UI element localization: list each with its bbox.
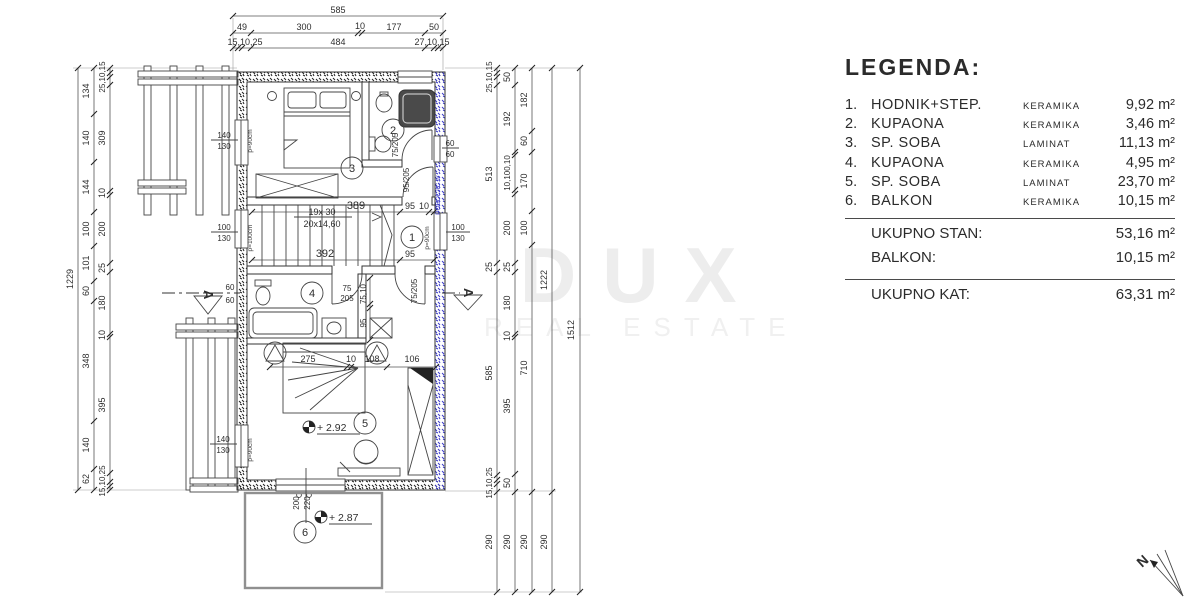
blueprint-page: DUX REAL ESTATE bbox=[0, 0, 1200, 601]
dim-label: 180 bbox=[502, 295, 512, 310]
room-material: KERAMIKA bbox=[1023, 101, 1113, 112]
legend-title: LEGENDA: bbox=[845, 54, 1175, 81]
room-name: KUPAONA bbox=[871, 155, 1023, 171]
dim-label: 200 bbox=[97, 221, 107, 236]
level-markers bbox=[303, 421, 372, 524]
window-labels: 140 130 100 130 140 130 100 130 60 60 60… bbox=[210, 131, 470, 455]
window-size-label: 130 bbox=[217, 142, 231, 151]
dim-label: 389 bbox=[347, 200, 365, 212]
room-name: KUPAONA bbox=[871, 116, 1023, 132]
legend-item: 3. SP. SOBA LAMINAT 11,13 m² bbox=[845, 135, 1175, 154]
dim-label: 62 bbox=[81, 474, 91, 484]
room-number: 1 bbox=[409, 232, 415, 244]
room-material: KERAMIKA bbox=[1023, 120, 1113, 131]
dim-label: 290 bbox=[539, 534, 549, 549]
dim-label: 60 bbox=[519, 136, 529, 146]
bathroom4-fixtures bbox=[249, 280, 392, 338]
dim-label: 95 bbox=[405, 201, 415, 211]
room-area: 11,13 m² bbox=[1113, 135, 1175, 151]
balcony-door-label: 200 bbox=[292, 496, 301, 510]
total-value: 10,15 m² bbox=[1113, 249, 1175, 266]
dim-label: 290 bbox=[519, 534, 529, 549]
dim-label: 15,10,25 bbox=[98, 465, 107, 497]
room-name: HODNIK+STEP. bbox=[871, 97, 1023, 113]
dim-label: 100 bbox=[519, 220, 529, 235]
insulated-wall-blue bbox=[435, 72, 445, 490]
dim-label: 513 bbox=[484, 166, 494, 181]
dim-label: 1222 bbox=[539, 270, 549, 290]
room-number: 2 bbox=[390, 125, 396, 137]
legend-divider bbox=[845, 218, 1175, 219]
room-number: 6 bbox=[302, 527, 308, 539]
total-label: UKUPNO STAN: bbox=[871, 225, 1113, 242]
dim-label: 309 bbox=[97, 130, 107, 145]
dim-label: 106 bbox=[404, 354, 419, 364]
room-material: LAMINAT bbox=[1023, 139, 1113, 150]
dim-label: 10,100,10 bbox=[503, 155, 512, 191]
dim-label: 10 bbox=[419, 201, 429, 211]
dim-label: 1229 bbox=[65, 269, 75, 289]
bedroom3-furniture bbox=[256, 88, 361, 198]
window-size-label: 140 bbox=[217, 131, 231, 140]
room-material: LAMINAT bbox=[1023, 178, 1113, 189]
dim-label: 585 bbox=[484, 365, 494, 380]
dim-label: 192 bbox=[502, 111, 512, 126]
window-size-label: 100 bbox=[217, 223, 231, 232]
dim-label: 200 bbox=[502, 220, 512, 235]
dim-label: 180 bbox=[97, 295, 107, 310]
legend-item: 6. BALKON KERAMIKA 10,15 m² bbox=[845, 193, 1175, 212]
dim-label: 585 bbox=[330, 5, 345, 15]
parapet-label: p=90cm bbox=[424, 226, 431, 249]
item-number: 3. bbox=[845, 135, 871, 151]
dim-label: 395 bbox=[502, 398, 512, 413]
total-value: 53,16 m² bbox=[1113, 225, 1175, 242]
legend-item: 2. KUPAONA KERAMIKA 3,46 m² bbox=[845, 116, 1175, 135]
dim-label: 710 bbox=[519, 360, 529, 375]
dim-label: 50 bbox=[502, 478, 512, 488]
room-area: 4,95 m² bbox=[1113, 155, 1175, 171]
left-dim-labels: 1229 134 140 144 100 101 60 348 140 62 2… bbox=[65, 61, 107, 497]
dim-label: 392 bbox=[316, 248, 334, 260]
dim-label: 60 bbox=[81, 286, 91, 296]
total-label: BALKON: bbox=[871, 249, 1113, 266]
legend-divider bbox=[845, 279, 1175, 280]
parapet-label: p=90cm bbox=[247, 438, 254, 461]
legend-item: 1. HODNIK+STEP. KERAMIKA 9,92 m² bbox=[845, 97, 1175, 116]
level-label: + 2.87 bbox=[329, 512, 359, 524]
section-letter: A bbox=[461, 288, 476, 298]
right-dim-labels: 25,10,15 513 25 585 15,10,25 290 50 192 … bbox=[484, 61, 576, 550]
dim-label: 290 bbox=[484, 534, 494, 549]
section-letter: A bbox=[201, 290, 216, 300]
item-number: 1. bbox=[845, 97, 871, 113]
window-size-label: 130 bbox=[217, 234, 231, 243]
dim-label: 15,10,25 bbox=[485, 467, 494, 499]
item-number: 4. bbox=[845, 155, 871, 171]
legend-grand-total-row: UKUPNO KAT: 63,31 m² bbox=[845, 286, 1175, 310]
dim-label: 10 bbox=[355, 21, 365, 31]
dim-label: 25 bbox=[502, 262, 512, 272]
room-material: KERAMIKA bbox=[1023, 197, 1113, 208]
north-letter: N bbox=[1133, 552, 1151, 571]
dim-label: 25,10,15 bbox=[485, 61, 494, 93]
dim-label: 144 bbox=[81, 179, 91, 194]
dim-label: 75,10 bbox=[359, 283, 368, 304]
window-size-label: 60 bbox=[446, 139, 455, 148]
legend-rows: 1. HODNIK+STEP. KERAMIKA 9,92 m² 2. KUPA… bbox=[845, 97, 1175, 212]
dim-label: 95 bbox=[405, 249, 415, 259]
door-size-label: 205 bbox=[340, 294, 354, 303]
room-number: 3 bbox=[349, 163, 355, 175]
legend-item: 5. SP. SOBA LAMINAT 23,70 m² bbox=[845, 174, 1175, 193]
stair-steps-label: 19x 30 bbox=[308, 207, 335, 217]
room-area: 3,46 m² bbox=[1113, 116, 1175, 132]
room-material: KERAMIKA bbox=[1023, 159, 1113, 170]
dim-label: 100 bbox=[81, 221, 91, 236]
top-dim-labels: 585 49 300 10 177 50 15,10,25 484 27,10,… bbox=[227, 5, 449, 47]
room-number: 4 bbox=[309, 288, 315, 300]
dim-label: 95 bbox=[359, 318, 368, 327]
balcony-door-label: 220 bbox=[303, 496, 312, 510]
item-number: 6. bbox=[845, 193, 871, 209]
dim-label: 290 bbox=[502, 534, 512, 549]
dim-label: 10 bbox=[97, 188, 107, 198]
dim-label: 1512 bbox=[566, 320, 576, 340]
pergola-top-left bbox=[138, 66, 238, 215]
legend-total-row: UKUPNO STAN: 53,16 m² bbox=[845, 225, 1175, 249]
legend-total-row: BALKON: 10,15 m² bbox=[845, 249, 1175, 273]
dim-label: 101 bbox=[81, 255, 91, 270]
window-size-label: 60 bbox=[226, 296, 235, 305]
dim-label: 140 bbox=[81, 130, 91, 145]
window-size-label: 100 bbox=[451, 223, 465, 232]
door-size-label: 95/205 bbox=[402, 167, 411, 192]
window-size-label: 60 bbox=[446, 150, 455, 159]
door-size-label: 75 bbox=[343, 284, 352, 293]
dim-label: 25 bbox=[97, 263, 107, 273]
bathroom2-fixtures bbox=[369, 90, 435, 152]
dim-label: 108 bbox=[364, 354, 379, 364]
dim-label: 50 bbox=[502, 72, 512, 82]
stair-rise-label: 20x14,60 bbox=[303, 219, 340, 229]
grand-total-value: 63,31 m² bbox=[1113, 286, 1175, 303]
dim-label: 348 bbox=[81, 353, 91, 368]
room-name: BALKON bbox=[871, 193, 1023, 209]
room-area: 10,15 m² bbox=[1113, 193, 1175, 209]
room-number: 5 bbox=[362, 418, 368, 430]
interior-labels: 389 95 10 392 95 19x 30 20x14,60 275 10 … bbox=[247, 129, 442, 524]
dim-label: 50 bbox=[429, 22, 439, 32]
item-number: 5. bbox=[845, 174, 871, 190]
north-arrow-icon: N bbox=[1133, 550, 1183, 596]
door-size-label: 75/205 bbox=[410, 278, 419, 303]
dim-label: 134 bbox=[81, 83, 91, 98]
item-number: 2. bbox=[845, 116, 871, 132]
legend-panel: LEGENDA: 1. HODNIK+STEP. KERAMIKA 9,92 m… bbox=[845, 54, 1175, 310]
dim-label: 177 bbox=[386, 22, 401, 32]
dim-label: 15,10,25 bbox=[227, 37, 262, 47]
window-size-label: 130 bbox=[451, 234, 465, 243]
room-area: 23,70 m² bbox=[1113, 174, 1175, 190]
window-size-label: 140 bbox=[216, 435, 230, 444]
dim-label: 275 bbox=[300, 354, 315, 364]
dim-label: 140 bbox=[81, 437, 91, 452]
window-size-label: 130 bbox=[216, 446, 230, 455]
dim-label: 25 bbox=[484, 262, 494, 272]
dim-label: 10 bbox=[346, 354, 356, 364]
grand-total-label: UKUPNO KAT: bbox=[871, 286, 1113, 303]
room-area: 9,92 m² bbox=[1113, 97, 1175, 113]
dim-label: 49 bbox=[237, 22, 247, 32]
dim-label: 25,10,15 bbox=[98, 61, 107, 93]
dim-label: 395 bbox=[97, 397, 107, 412]
room-name: SP. SOBA bbox=[871, 135, 1023, 151]
dim-label: 10 bbox=[97, 330, 107, 340]
pergola-mid-left bbox=[176, 318, 238, 492]
room-name: SP. SOBA bbox=[871, 174, 1023, 190]
dim-label: 300 bbox=[296, 22, 311, 32]
side-watermark: POBOLJIC.hr bbox=[435, 174, 442, 215]
parapet-label: p=90cm bbox=[247, 129, 254, 152]
window-size-label: 60 bbox=[226, 283, 235, 292]
parapet-label: p=100cm bbox=[247, 225, 254, 252]
dim-label: 27,10,15 bbox=[414, 37, 449, 47]
dim-label: 170 bbox=[519, 173, 529, 188]
dim-label: 10 bbox=[502, 331, 512, 341]
legend-item: 4. KUPAONA KERAMIKA 4,95 m² bbox=[845, 155, 1175, 174]
level-label: + 2.92 bbox=[317, 422, 347, 434]
dim-label: 484 bbox=[330, 37, 345, 47]
dim-label: 182 bbox=[519, 92, 529, 107]
